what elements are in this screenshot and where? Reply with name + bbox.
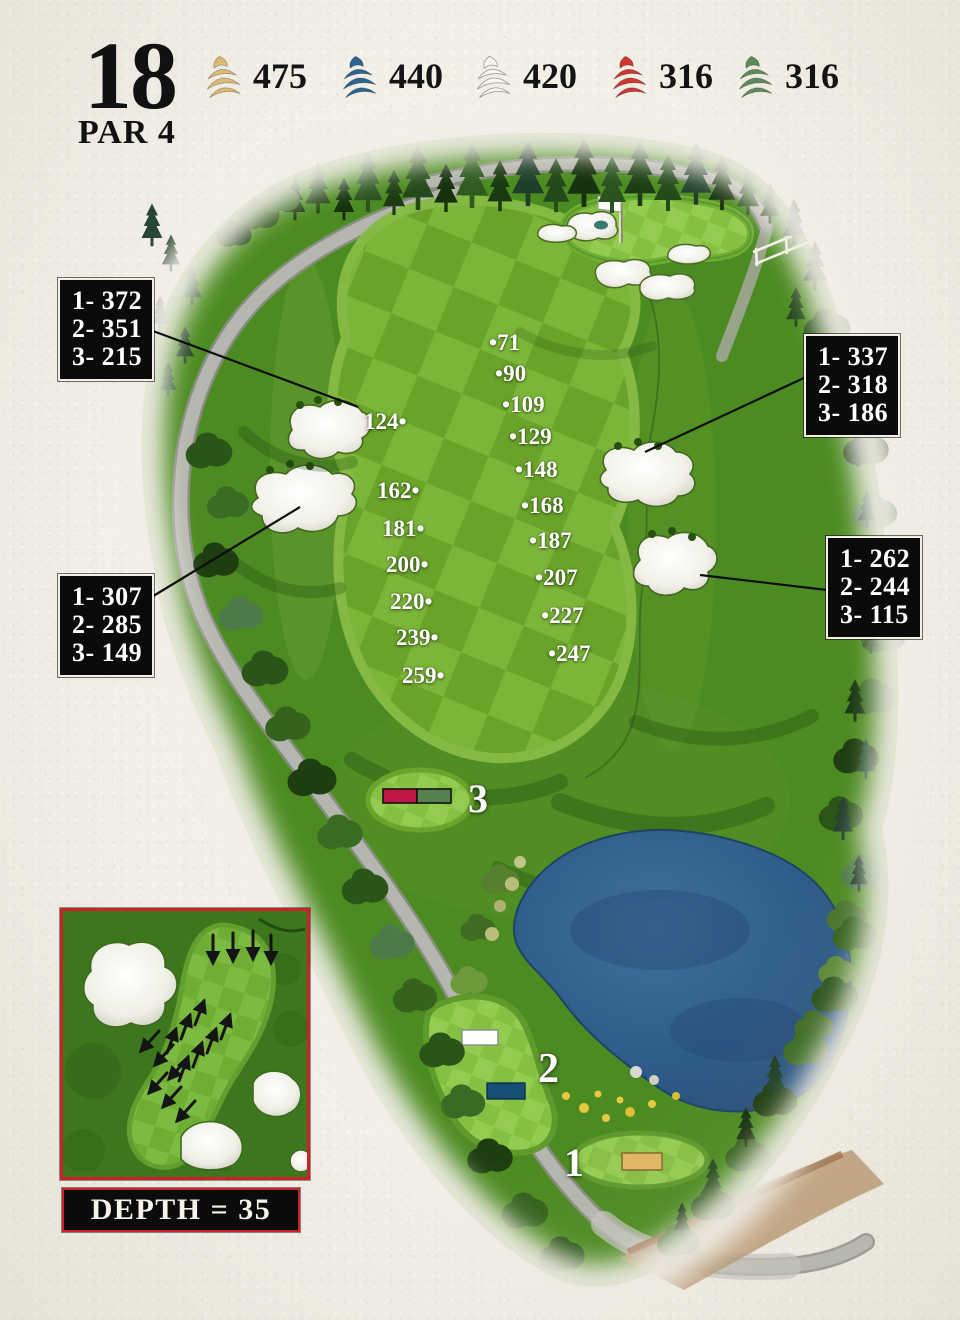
green-depth-label: DEPTH = 35 bbox=[91, 1193, 271, 1227]
yardage-book-page: 18 PAR 4 475 440 420 bbox=[0, 0, 960, 1320]
yardage-dot: • bbox=[535, 565, 543, 590]
callout-lower-left: 1- 307 2- 285 3- 149 bbox=[58, 574, 154, 677]
legend-item-green: 316 bbox=[732, 54, 839, 98]
callout-line: 1- 262 bbox=[840, 545, 910, 573]
yardage-dot: • bbox=[515, 457, 523, 482]
callout-line: 2- 318 bbox=[818, 371, 888, 399]
callout-line: 1- 307 bbox=[72, 583, 142, 611]
yardage-marker-left: 124• bbox=[364, 410, 407, 433]
yardage-marker-right: •187 bbox=[529, 529, 572, 552]
tee-marker-icon bbox=[603, 51, 653, 101]
yardage-marker-right: •247 bbox=[548, 642, 591, 665]
callout-lower-right: 1- 262 2- 244 3- 115 bbox=[826, 536, 922, 639]
callout-line: 2- 244 bbox=[840, 573, 910, 601]
yardage-dot: • bbox=[431, 625, 439, 650]
yardage-marker-right: •227 bbox=[541, 604, 584, 627]
yardage-marker-right: •109 bbox=[502, 393, 545, 416]
yardage-dot: • bbox=[495, 361, 503, 386]
yardage-marker-left: 259• bbox=[402, 664, 445, 687]
par-label: PAR 4 bbox=[78, 114, 176, 152]
callout-line: 3- 149 bbox=[72, 639, 142, 667]
callout-line: 3- 215 bbox=[72, 343, 142, 371]
yardage-dot: • bbox=[509, 424, 517, 449]
yardage-dot: • bbox=[421, 552, 429, 577]
tee-yardage: 475 bbox=[253, 55, 307, 97]
yardage-dot: • bbox=[548, 641, 556, 666]
legend-item-red: 316 bbox=[606, 54, 713, 98]
tee-yardage: 420 bbox=[523, 55, 577, 97]
legend-item-gold: 475 bbox=[200, 54, 307, 98]
tee-box-1 bbox=[573, 1133, 707, 1187]
tee-marker-icon bbox=[197, 51, 247, 101]
tee-yardage: 316 bbox=[785, 55, 839, 97]
yardage-dot: • bbox=[502, 392, 510, 417]
yardage-dot: • bbox=[425, 589, 433, 614]
tee-label-1: 1 bbox=[564, 1143, 584, 1183]
yardage-marker-left: 239• bbox=[396, 626, 439, 649]
callout-upper-left: 1- 372 2- 351 3- 215 bbox=[58, 278, 154, 381]
tee-box-3 bbox=[368, 770, 472, 830]
callout-line: 2- 351 bbox=[72, 315, 142, 343]
legend-item-white: 420 bbox=[470, 54, 577, 98]
tee-yardage: 316 bbox=[659, 55, 713, 97]
yardage-dot: • bbox=[412, 478, 420, 503]
green-detail-inset bbox=[60, 908, 310, 1180]
legend-item-blue: 440 bbox=[336, 54, 443, 98]
yardage-dot: • bbox=[417, 516, 425, 541]
callout-upper-right: 1- 337 2- 318 3- 186 bbox=[804, 334, 900, 437]
yardage-marker-right: •148 bbox=[515, 458, 558, 481]
yardage-marker-left: 200• bbox=[386, 553, 429, 576]
tee-marker-icon bbox=[467, 51, 517, 101]
tee-label-3: 3 bbox=[468, 779, 488, 819]
yardage-marker-left: 162• bbox=[377, 479, 420, 502]
callout-line: 1- 337 bbox=[818, 343, 888, 371]
hole-number: 18 bbox=[84, 28, 176, 124]
tee-yardage: 440 bbox=[389, 55, 443, 97]
green-detail-inset-illustration bbox=[63, 911, 307, 1171]
tee-label-2: 2 bbox=[538, 1048, 559, 1090]
callout-line: 1- 372 bbox=[72, 287, 142, 315]
yardage-marker-right: •207 bbox=[535, 566, 578, 589]
yardage-dot: • bbox=[521, 493, 529, 518]
callout-line: 3- 186 bbox=[818, 399, 888, 427]
yardage-dot: • bbox=[437, 663, 445, 688]
yardage-marker-right: •129 bbox=[509, 425, 552, 448]
tee-marker-icon bbox=[333, 51, 383, 101]
yardage-marker-right: •168 bbox=[521, 494, 564, 517]
yardage-dot: • bbox=[541, 603, 549, 628]
yardage-dot: • bbox=[399, 409, 407, 434]
callout-line: 2- 285 bbox=[72, 611, 142, 639]
yardage-dot: • bbox=[529, 528, 537, 553]
yardage-dot: • bbox=[489, 330, 497, 355]
callout-line: 3- 115 bbox=[840, 601, 910, 629]
yardage-marker-left: 181• bbox=[382, 517, 425, 540]
yardage-marker-right: •90 bbox=[495, 362, 526, 385]
tee-marker-icon bbox=[729, 51, 779, 101]
yardage-marker-left: 220• bbox=[390, 590, 433, 613]
yardage-marker-right: •71 bbox=[489, 331, 520, 354]
green-depth-box: DEPTH = 35 bbox=[62, 1188, 300, 1232]
